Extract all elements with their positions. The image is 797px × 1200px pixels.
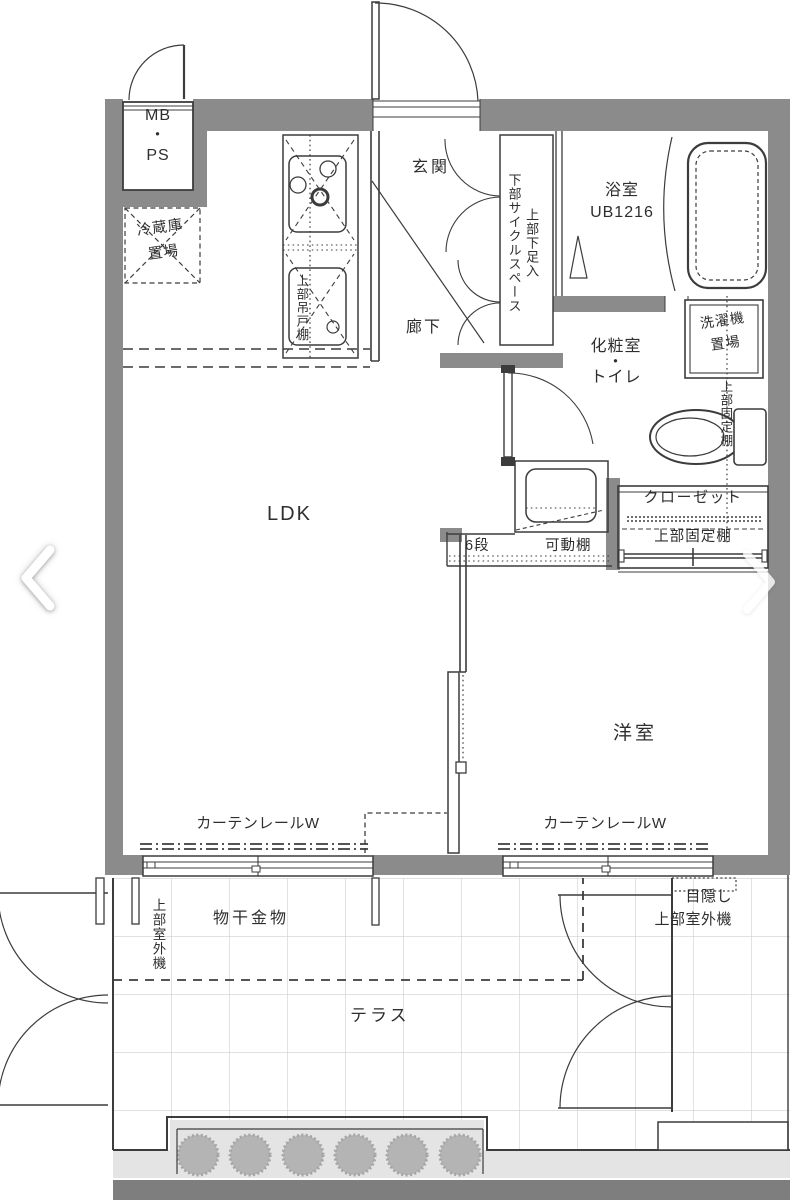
label-ldk: LDK [267,503,312,525]
room-divider-wall [365,535,466,853]
terrace-gate-left [0,893,108,1105]
label-laundry-hardware: 物干金物 [213,910,289,928]
label-closet-upper-shelf: 上部固定棚 [623,529,763,545]
carousel-next-button[interactable] [733,544,785,620]
chevron-right-icon [733,544,785,620]
label-movable-shelf: 可動棚 [545,538,592,554]
floorplan-image: MB ・ PS 冷蔵庫 置場 上部吊戸棚 玄関 上部下足入 下部サイクルスペース… [0,0,797,1200]
label-closet: クローゼット [623,490,763,507]
label-curtain-rail-left: カーテンレールW [158,816,358,833]
label-curtain-rail-right: カーテンレールW [505,816,705,833]
label-entrance: 玄関 [412,159,450,177]
label-outdoor-unit-right: 目隠し 上部室外機 [598,886,732,931]
toilet-icon [650,409,766,465]
label-terrace: テラス [350,1006,410,1025]
label-powder-toilet: 化粧室 ・ トイレ [578,339,654,386]
curtain-rail-lines [140,844,712,849]
carousel-prev-button[interactable] [14,540,66,616]
window-ldk [143,856,373,876]
label-bathroom: 浴室 UB1216 [572,180,672,223]
folding-door-mark [570,236,587,278]
laundry-bracket [372,878,379,925]
label-western-room: 洋室 [613,723,657,744]
label-shelf-tiers: 6段 [465,538,490,554]
label-toilet-upper-shelf: 上部固定棚 [718,360,732,468]
outdoor-unit-bracket [96,878,104,924]
label-mb-ps: MB ・ PS [123,106,193,166]
kitchen-hall-wall [371,131,379,361]
label-shoe-storage: 上部下足入 下部サイクルスペース [505,140,540,345]
laundry-bracket [132,878,139,924]
label-outdoor-unit-left: 上部室外機 [150,878,166,990]
window-bedroom [503,856,713,876]
label-kitchen-upper-cabinet: 上部吊戸棚 [294,258,308,358]
label-corridor: 廊下 [406,319,442,337]
ground-strip [113,1180,790,1200]
entrance-door [372,2,480,131]
bathtub-icon [688,143,766,288]
chevron-left-icon [14,540,66,616]
washbasin [515,461,608,532]
